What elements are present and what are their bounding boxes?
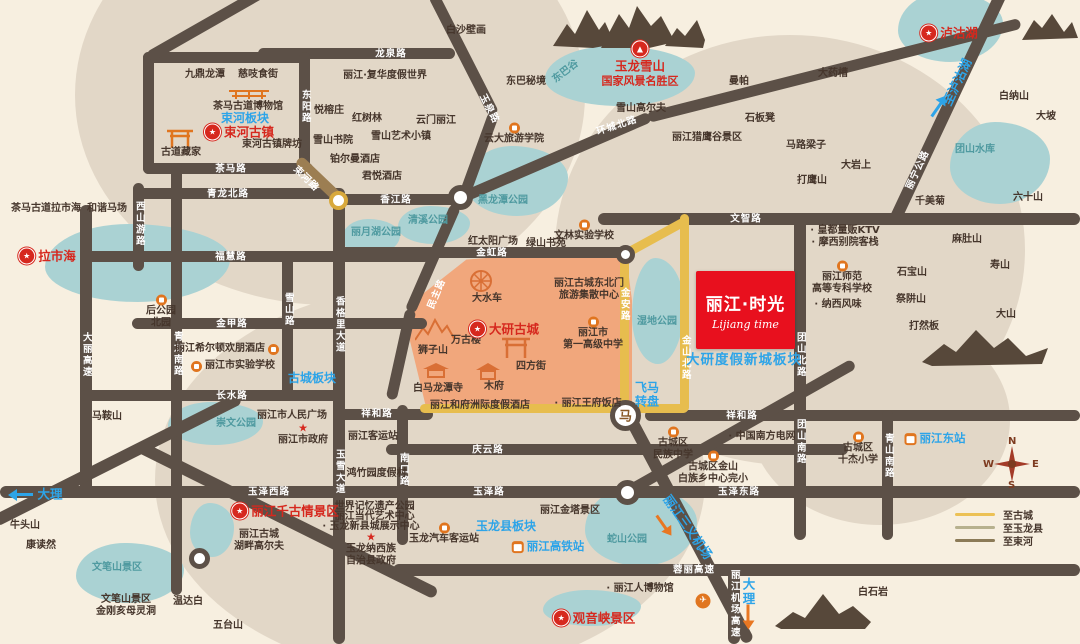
poi-hongzhuyuan-resort-label: · 鸿竹园度假村 bbox=[339, 468, 406, 480]
poi-dashan: 大山 bbox=[996, 309, 1016, 321]
scenic-lashihai-label: 拉市海 bbox=[38, 249, 76, 264]
lake-label-shidi-label: 湿地公园 bbox=[637, 316, 677, 328]
scenic-icon: ★ bbox=[553, 610, 570, 627]
org-yulong-bus-station: 玉龙汽车客运站 bbox=[409, 523, 479, 546]
baimalongtan-illustration bbox=[422, 362, 450, 378]
poi-mufu-label: 木府 bbox=[484, 381, 504, 393]
road-label-xiangjiang-label: 香江路 bbox=[380, 194, 412, 205]
poi-dayanshang-label: 大岩上 bbox=[841, 160, 871, 172]
org-no1-high-school: 丽江市第一高级中学 bbox=[563, 317, 623, 352]
poi-wenbishan-lingdong: 文笔山景区金刚亥母灵洞 bbox=[96, 594, 156, 618]
poi-pullman-hotel-label: 铂尔曼酒店 bbox=[330, 154, 380, 166]
poi-wangfu-hotel: · 丽江王府饭店 bbox=[554, 398, 621, 410]
roundabout-southwest bbox=[189, 548, 210, 569]
lake-label-tuanshan-reservoir: 团山水库 bbox=[955, 144, 995, 156]
compass-s: S bbox=[1008, 480, 1015, 491]
road-label-xiangjiang: 香江路 bbox=[380, 194, 412, 205]
poi-lieyinggu-label: 丽江猎鹰谷景区 bbox=[672, 132, 742, 144]
org-icon bbox=[439, 523, 450, 534]
scenic-luguhu: ★泸沽湖 bbox=[920, 25, 978, 42]
poi-maluliangzi-label: 马路梁子 bbox=[786, 140, 826, 152]
poi-dayanshang: 大岩上 bbox=[841, 160, 871, 172]
train-icon bbox=[512, 541, 524, 553]
poi-baishiyan: 白石岩 bbox=[858, 587, 888, 599]
road-label-jinhong: 金虹路 bbox=[476, 247, 508, 258]
road-label-xianghe-w: 祥和路 bbox=[361, 408, 393, 419]
poi-chamagudao-lashihai-label: 茶马古道拉市海 bbox=[11, 203, 81, 215]
project-marker[interactable]: 丽江·时光 Lijiang time bbox=[696, 271, 795, 349]
poi-shibaoshan: 石宝山 bbox=[897, 267, 927, 279]
poi-hongzhuyuan-resort: · 鸿竹园度假村 bbox=[339, 468, 406, 480]
poi-dayingshan-label: 打鹰山 bbox=[797, 175, 827, 187]
road-label-jichang-expwy: 丽江机场高速 bbox=[728, 570, 739, 639]
star-icon: ★ bbox=[366, 530, 376, 543]
poi-maanshan: 马鞍山 bbox=[92, 411, 122, 423]
poi-lijiangren-museum-label: · 丽江人博物馆 bbox=[606, 583, 673, 595]
road-label-xianggelila-label: 香格里大道 bbox=[333, 296, 344, 354]
poi-jiudinglongtan-label: 九鼎龙潭 bbox=[185, 69, 225, 81]
compass-rose: N E S W bbox=[988, 440, 1036, 488]
poi-lieyinggu: 丽江猎鹰谷景区 bbox=[672, 132, 742, 144]
poi-niutoushan: 牛头山 bbox=[10, 520, 40, 532]
org-icon bbox=[191, 361, 202, 372]
district-gucheng: 古城板块 bbox=[288, 371, 336, 385]
poi-intercontinental-hotel-label: 丽江和府洲际度假酒店 bbox=[430, 400, 530, 412]
poi-qianmeiju-label: 千美菊 bbox=[915, 196, 945, 208]
org-lijiang-city-gov-label: 丽江市政府 bbox=[278, 435, 328, 447]
lake-label-sheshan-label: 蛇山公园 bbox=[607, 534, 647, 546]
road-label-qingshannan: 青山南路 bbox=[882, 433, 893, 479]
lake-label-qingxi: 清溪公园 bbox=[408, 215, 448, 227]
lake-label-liyuehu: 丽月湖公园 bbox=[351, 227, 401, 239]
scenic-lashihai: ★拉市海 bbox=[18, 248, 76, 265]
compass-n: N bbox=[1008, 436, 1016, 447]
project-name: 丽江·时光 bbox=[706, 290, 785, 315]
road-label-changshui-label: 长水路 bbox=[216, 390, 248, 401]
poi-dongba-mijing-label: 东巴秘境 bbox=[506, 76, 546, 88]
road-label-rongli: 蓉丽高速 bbox=[673, 564, 715, 575]
lake-label-shidi: 湿地公园 bbox=[637, 316, 677, 328]
org-wenlin-school: 文林实验学校 bbox=[554, 220, 614, 243]
station-lijiang-east: 丽江东站 bbox=[905, 432, 966, 446]
road-label-yuze: 玉泽路 bbox=[473, 486, 505, 497]
lake-label-tuanshan-reservoir-label: 团山水库 bbox=[955, 144, 995, 156]
lijiang-location-map: 马 丽江·时光 Lijiang time 至古城 至玉龙县 至束河 N E S … bbox=[0, 0, 1080, 644]
poi-sifangjie-label: 四方街 bbox=[516, 361, 546, 373]
compass-w: W bbox=[983, 459, 994, 470]
road-label-longquan-label: 龙泉路 bbox=[375, 48, 407, 59]
poi-cizhi-food-street: 慈吱食街 bbox=[238, 69, 278, 81]
scenic-luguhu-label: 泸沽湖 bbox=[940, 26, 978, 41]
scenic-dayan-old-town-label: 大研古城 bbox=[489, 322, 539, 337]
poi-qianmeiju: 千美菊 bbox=[915, 196, 945, 208]
poi-dapo: 大坡 bbox=[1036, 111, 1056, 123]
road-label-longquan: 龙泉路 bbox=[375, 48, 407, 59]
poi-jijingshan-label: 祭阱山 bbox=[896, 294, 926, 306]
road-label-qingyun: 庆云路 bbox=[472, 444, 504, 455]
train-icon bbox=[905, 433, 917, 445]
poi-lakeside-golf-label-2: 湖畔高尔夫 bbox=[234, 541, 284, 553]
poi-huangdu-ktv: · 皇都量贩KTV bbox=[810, 225, 880, 237]
road-label-fuhui-label: 福慧路 bbox=[215, 251, 247, 262]
sifangjie-gate-illustration bbox=[500, 334, 532, 358]
scenic-icon: ★ bbox=[18, 248, 35, 265]
lake-label-chongwen-label: 崇文公园 bbox=[216, 418, 256, 430]
poi-huangdu-ktv-label: · 皇都量贩KTV bbox=[810, 225, 880, 237]
poi-gudaozangjia: 古道藏家 bbox=[161, 147, 201, 159]
org-icon bbox=[668, 427, 679, 438]
district-feima-roundabout-label: 飞马 bbox=[635, 381, 659, 395]
road-label-jichang-expwy-label: 丽江机场高速 bbox=[728, 570, 739, 639]
poi-dashuiche-label: 大水车 bbox=[472, 293, 502, 305]
scenic-qianguqing: ★丽江千古情景区 bbox=[231, 503, 339, 520]
district-dayan-newtown: 大研度假新城板块 bbox=[686, 352, 802, 368]
road-label-wenzhi: 文智路 bbox=[730, 213, 762, 224]
poi-naxi-fengwei: · 纳西风味 bbox=[814, 299, 861, 311]
scenic-yulong-snow-mountain-label: 玉龙雪山 bbox=[615, 58, 665, 73]
org-hougongyuan-beiyuan-label-2: 北园 bbox=[151, 318, 171, 330]
poi-dashuiche: 大水车 bbox=[472, 293, 502, 305]
poi-xueshan-academy-label: 雪山书院 bbox=[313, 135, 353, 147]
poi-shoushan-label: 寿山 bbox=[990, 260, 1010, 272]
poi-junyue-hotel-label: 君悦酒店 bbox=[362, 171, 402, 183]
scenic-yulong-snow-mountain-label-2: 国家风景名胜区 bbox=[602, 74, 679, 87]
mtn-icon: ▲ bbox=[632, 40, 649, 57]
scenic-dayan-old-town: ★大研古城 bbox=[469, 321, 539, 338]
direction-dali-west-label: 大理 bbox=[37, 487, 62, 502]
poi-bainashan: 白纳山 bbox=[999, 91, 1029, 103]
scenic-icon: ★ bbox=[469, 321, 486, 338]
arrow-dali-west bbox=[11, 493, 33, 496]
org-minzu-middle-school-label: 古城区 bbox=[658, 438, 688, 450]
poi-baisha-murals-label: 白沙壁画 bbox=[446, 25, 486, 37]
poi-jijingshan: 祭阱山 bbox=[896, 294, 926, 306]
poi-dayaocao: 大药槽 bbox=[818, 68, 848, 80]
poi-pullman-hotel: 铂尔曼酒店 bbox=[330, 154, 380, 166]
org-icon bbox=[708, 451, 719, 462]
poi-dayingshan: 打鹰山 bbox=[797, 175, 827, 187]
poi-liushishan-label: 六十山 bbox=[1013, 192, 1043, 204]
poi-baimalongtan-temple: 白马龙潭寺 bbox=[413, 383, 463, 395]
poi-wendabai: 温达白 bbox=[173, 596, 203, 608]
poi-naxi-fengwei-label: · 纳西风味 bbox=[814, 299, 861, 311]
road-label-dali-expwy: 大丽高速 bbox=[80, 332, 91, 378]
road-label-tuanshannan-label: 团山南路 bbox=[794, 419, 805, 465]
road-label-chama: 茶马路 bbox=[215, 163, 247, 174]
road-label-xianghe-w-label: 祥和路 bbox=[361, 408, 393, 419]
gold-road-jinshanbei bbox=[680, 214, 689, 412]
project-name-en: Lijiang time bbox=[712, 318, 779, 331]
org-icon bbox=[156, 295, 167, 306]
station-lijiang-hsr-label: 丽江高铁站 bbox=[527, 540, 585, 554]
poi-lijiang-bus-station-label: 丽江客运站 bbox=[348, 431, 398, 443]
legend-line-brown bbox=[955, 539, 995, 542]
lake-label-wenbishan: 文笔山景区 bbox=[92, 562, 142, 574]
icon-airport: ✈ bbox=[696, 594, 711, 609]
poi-hongtaiyang-square: 红太阳广场 bbox=[468, 236, 518, 248]
poi-lakeside-golf-label: 丽江古城 bbox=[239, 529, 279, 541]
road-label-qingyun-label: 庆云路 bbox=[472, 444, 504, 455]
poi-moxi-inn: · 摩西别院客栈 bbox=[811, 237, 878, 249]
star-icon: ★ bbox=[298, 421, 308, 434]
legend-label: 至束河 bbox=[1003, 533, 1033, 548]
road-label-xishanyou-label: 西山游路 bbox=[133, 201, 144, 247]
org-hilton-hotel: 丽江希尔顿欢朋酒店 bbox=[175, 343, 279, 355]
poi-hexie-horse-ranch-label: 和谐马场 bbox=[87, 203, 127, 215]
museum-illustration bbox=[228, 85, 270, 99]
poi-dapo-label: 大坡 bbox=[1036, 111, 1056, 123]
org-icon bbox=[579, 220, 590, 231]
road-qinglongnan bbox=[171, 163, 182, 595]
org-jinshan-primary-label-2: 白族乡中心完小 bbox=[678, 474, 748, 486]
map-legend: 至古城 至玉龙县 至束河 bbox=[955, 508, 1043, 547]
district-feima-roundabout-label-2: 转盘 bbox=[635, 395, 659, 409]
road-xianghe-east bbox=[645, 410, 1080, 421]
road-label-jinjia-label: 金甲路 bbox=[216, 318, 248, 329]
poi-lakeside-golf: 丽江古城湖畔高尔夫 bbox=[234, 529, 284, 553]
poi-hongshulin: 红树林 bbox=[352, 113, 382, 125]
poi-maluliangzi: 马路梁子 bbox=[786, 140, 826, 152]
org-icon bbox=[837, 261, 848, 272]
org-normal-college-label: 丽江师范 bbox=[822, 272, 862, 284]
org-wenlin-school-label: 文林实验学校 bbox=[554, 231, 614, 243]
poi-manpa-label: 曼帕 bbox=[729, 76, 749, 88]
road-label-jinhong-label: 金虹路 bbox=[476, 247, 508, 258]
road-label-qinglongbei-label: 青龙北路 bbox=[207, 188, 249, 199]
poi-jinta-scenic: 丽江金塔景区 bbox=[540, 505, 600, 517]
scenic-icon: ★ bbox=[920, 25, 937, 42]
poi-hongshulin-label: 红树林 bbox=[352, 113, 382, 125]
road-label-xueshan-rd: 雪山路 bbox=[282, 293, 293, 328]
poi-xueshan-art-town: 雪山艺术小镇 bbox=[371, 131, 431, 143]
poi-yunmen-lijiang-label: 云门丽江 bbox=[416, 115, 456, 127]
legend-line-gold bbox=[955, 513, 995, 516]
org-lijiang-city-gov: ★丽江市政府 bbox=[278, 421, 328, 446]
road-label-xianghe-e: 祥和路 bbox=[726, 410, 758, 421]
lake-label-liyuehu-label: 丽月湖公园 bbox=[351, 227, 401, 239]
poi-china-southern-grid: · 中国南方电网 bbox=[728, 431, 795, 443]
poi-baimalongtan-temple-label: 白马龙潭寺 bbox=[413, 383, 463, 395]
lake-label-heilongtan: 黑龙潭公园 bbox=[478, 195, 528, 207]
poi-baishiyan-label: 白石岩 bbox=[858, 587, 888, 599]
direction-dali-south-label: 大理 bbox=[741, 578, 756, 607]
road-changshui bbox=[80, 390, 345, 401]
poi-bainashan-label: 白纳山 bbox=[999, 91, 1029, 103]
roundabout-heilongtan bbox=[448, 185, 473, 210]
poi-xueshan-academy: 雪山书院 bbox=[313, 135, 353, 147]
lake-label-heilongtan-label: 黑龙潭公园 bbox=[478, 195, 528, 207]
poi-old-town-ne-gate-label-2: 旅游集散中心 bbox=[559, 290, 619, 302]
poi-dayaocao-label: 大药槽 bbox=[818, 68, 848, 80]
poi-intercontinental-hotel: 丽江和府洲际度假酒店 bbox=[430, 400, 530, 412]
org-icon bbox=[509, 123, 520, 134]
station-lijiang-hsr: 丽江高铁站 bbox=[512, 540, 585, 554]
poi-sifangjie: 四方街 bbox=[516, 361, 546, 373]
poi-wenbishan-lingdong-label-2: 金刚亥母灵洞 bbox=[96, 606, 156, 618]
scenic-guanyinxia-label: 观音峡景区 bbox=[573, 611, 636, 626]
district-dayan-newtown-label: 大研度假新城板块 bbox=[686, 352, 802, 368]
poi-xueshan-art-town-label: 雪山艺术小镇 bbox=[371, 131, 431, 143]
org-shijie-primary: 古城区十杰小学 bbox=[838, 432, 878, 467]
road-label-wenzhi-label: 文智路 bbox=[730, 213, 762, 224]
scenic-qianguqing-label: 丽江千古情景区 bbox=[251, 504, 339, 519]
poi-old-town-ne-gate: 丽江古城东北门旅游集散中心 bbox=[554, 278, 624, 302]
roundabout-yuze bbox=[615, 480, 640, 505]
road-label-yuze-e-label: 玉泽东路 bbox=[718, 486, 760, 497]
org-icon bbox=[853, 432, 864, 443]
lake-label-qingxi-label: 清溪公园 bbox=[408, 215, 448, 227]
org-yunda-tourism-college: 云大旅游学院 bbox=[484, 123, 544, 146]
road-label-dali-expwy-label: 大丽高速 bbox=[80, 332, 91, 378]
poi-wangfu-hotel-label: · 丽江王府饭店 bbox=[554, 398, 621, 410]
poi-daranban: 打然板 bbox=[909, 321, 939, 333]
poi-fuhua-resort-world-label: 丽江·复华度假世界 bbox=[343, 70, 427, 82]
legend-row-shuhe: 至束河 bbox=[955, 534, 1043, 547]
shuhe-gate-illustration bbox=[166, 126, 194, 148]
road-label-rongli-label: 蓉丽高速 bbox=[673, 564, 715, 575]
roundabout-jinan bbox=[616, 245, 635, 264]
mountain-silhouette-ne bbox=[1022, 12, 1078, 42]
road-label-yuze-e: 玉泽东路 bbox=[718, 486, 760, 497]
poi-old-town-ne-gate-label: 丽江古城东北门 bbox=[554, 278, 624, 290]
poi-wenbishan-lingdong-label: 文笔山景区 bbox=[101, 594, 151, 606]
org-icon bbox=[588, 317, 599, 328]
org-yulong-county-gov-label: 玉龙纳西族 bbox=[346, 544, 396, 556]
road-label-fuhui: 福慧路 bbox=[215, 251, 247, 262]
poi-lijiangren-museum: · 丽江人博物馆 bbox=[606, 583, 673, 595]
poi-shoushan: 寿山 bbox=[990, 260, 1010, 272]
org-yunda-tourism-college-label: 云大旅游学院 bbox=[484, 134, 544, 146]
poi-renmin-square-label: 丽江市人民广场 bbox=[257, 410, 327, 422]
poi-wendabai-label: 温达白 bbox=[173, 596, 203, 608]
lake-label-wenbishan-label: 文笔山景区 bbox=[92, 562, 142, 574]
poi-wutaishan: 五台山 bbox=[213, 620, 243, 632]
poi-cizhi-food-street-label: 慈吱食街 bbox=[238, 69, 278, 81]
scenic-yulong-snow-mountain: ▲玉龙雪山国家风景名胜区 bbox=[602, 40, 679, 87]
org-lijiang-experimental-school-label: 丽江市实验学校 bbox=[205, 360, 275, 372]
org-icon bbox=[268, 344, 279, 355]
poi-yunmen-lijiang: 云门丽江 bbox=[416, 115, 456, 127]
poi-madushan: 麻肚山 bbox=[952, 234, 982, 246]
poi-wutaishan-label: 五台山 bbox=[213, 620, 243, 632]
poi-maanshan-label: 马鞍山 bbox=[92, 411, 122, 423]
poi-xueshan-golf-label: 雪山高尔夫 bbox=[616, 103, 666, 115]
org-yulong-bus-station-label: 玉龙汽车客运站 bbox=[409, 534, 479, 546]
road-label-tuanshannan: 团山南路 bbox=[794, 419, 805, 465]
road-shuhe-ring-top bbox=[143, 52, 310, 63]
road-label-yuze-label: 玉泽路 bbox=[473, 486, 505, 497]
mountain-silhouette-se bbox=[775, 592, 871, 630]
org-shijie-primary-label: 古城区 bbox=[843, 443, 873, 455]
poi-china-southern-grid-label: · 中国南方电网 bbox=[728, 431, 795, 443]
mountain-silhouette-east bbox=[922, 326, 1048, 366]
poi-shibandeng: 石板凳 bbox=[745, 113, 775, 125]
waterwheel-illustration bbox=[468, 268, 494, 294]
org-normal-college: 丽江师范高等专科学校 bbox=[812, 261, 872, 296]
poi-jinta-scenic-label: 丽江金塔景区 bbox=[540, 505, 600, 517]
road-label-xishanyou: 西山游路 bbox=[133, 201, 144, 247]
poi-mufu: 木府 bbox=[484, 381, 504, 393]
poi-gudaozangjia-label: 古道藏家 bbox=[161, 147, 201, 159]
mufu-illustration bbox=[474, 362, 502, 380]
legend-line-grey bbox=[955, 526, 995, 529]
org-jinshan-primary: 古城区金山白族乡中心完小 bbox=[678, 451, 748, 486]
road-label-xianghe-e-label: 祥和路 bbox=[726, 410, 758, 421]
poi-liushishan: 六十山 bbox=[1013, 192, 1043, 204]
lake-label-sheshan: 蛇山公园 bbox=[607, 534, 647, 546]
org-no1-high-school-label: 丽江市 bbox=[578, 328, 608, 340]
arrow-dali-south bbox=[747, 605, 750, 627]
poi-lijiang-bus-station: 丽江客运站 bbox=[348, 431, 398, 443]
poi-moxi-inn-label: · 摩西别院客栈 bbox=[811, 237, 878, 249]
poi-junyue-hotel: 君悦酒店 bbox=[362, 171, 402, 183]
poi-shuhe-archway-label: 束河古镇牌坊 bbox=[242, 139, 302, 151]
direction-dali-west: 大理 bbox=[37, 487, 62, 502]
org-hilton-hotel-label: 丽江希尔顿欢朋酒店 bbox=[175, 343, 265, 355]
poi-yuerongzhuang: 悦榕庄 bbox=[314, 105, 344, 117]
poi-daranban-label: 打然板 bbox=[909, 321, 939, 333]
poi-dongba-mijing: 东巴秘境 bbox=[506, 76, 546, 88]
district-yulongxian-label: 玉龙县板块 bbox=[476, 519, 536, 533]
poi-madushan-label: 麻肚山 bbox=[952, 234, 982, 246]
road-label-dongyang: 东阳路 bbox=[299, 90, 310, 125]
poi-niutoushan-label: 牛头山 bbox=[10, 520, 40, 532]
poi-shibaoshan-label: 石宝山 bbox=[897, 267, 927, 279]
road-label-qinglongbei: 青龙北路 bbox=[207, 188, 249, 199]
scenic-shuhe-old-town-label: 束河古镇 bbox=[224, 125, 274, 140]
station-lijiang-east-label: 丽江东站 bbox=[920, 432, 966, 446]
road-label-xianggelila: 香格里大道 bbox=[333, 296, 344, 354]
road-label-dongyang-label: 东阳路 bbox=[299, 90, 310, 125]
road-label-yuze-w: 玉泽西路 bbox=[248, 486, 290, 497]
scenic-guanyinxia: ★观音峡景区 bbox=[553, 610, 636, 627]
district-yulongxian: 玉龙县板块 bbox=[476, 519, 536, 533]
compass-e: E bbox=[1032, 459, 1039, 470]
org-hougongyuan-beiyuan-label: 后公园 bbox=[146, 306, 176, 318]
poi-manpa: 曼帕 bbox=[729, 76, 749, 88]
org-normal-college-label-2: 高等专科学校 bbox=[812, 284, 872, 296]
org-shijie-primary-label-2: 十杰小学 bbox=[838, 455, 878, 467]
poi-dashan-label: 大山 bbox=[996, 309, 1016, 321]
plane-icon: ✈ bbox=[696, 594, 711, 609]
road-label-qingshannan-label: 青山南路 bbox=[882, 433, 893, 479]
org-no1-high-school-label-2: 第一高级中学 bbox=[563, 340, 623, 352]
district-feima-roundabout: 飞马转盘 bbox=[635, 381, 659, 410]
road-xianggelila-yuxue bbox=[333, 196, 345, 644]
org-hougongyuan-beiyuan: 后公园北园 bbox=[146, 295, 176, 330]
poi-hexie-horse-ranch: 和谐马场 bbox=[87, 203, 127, 215]
direction-dali-south: 大理 bbox=[741, 578, 756, 607]
poi-baisha-murals: 白沙壁画 bbox=[446, 25, 486, 37]
poi-chamagudao-lashihai: 茶马古道拉市海 bbox=[11, 203, 81, 215]
poi-renmin-square: 丽江市人民广场 bbox=[257, 410, 327, 422]
org-lijiang-experimental-school: 丽江市实验学校 bbox=[191, 360, 275, 372]
org-yulong-county-gov: ★玉龙纳西族自治县政府 bbox=[346, 530, 396, 567]
poi-shibandeng-label: 石板凳 bbox=[745, 113, 775, 125]
poi-yuerongzhuang-label: 悦榕庄 bbox=[314, 105, 344, 117]
road-label-yuze-w-label: 玉泽西路 bbox=[248, 486, 290, 497]
poi-fuhua-resort-world: 丽江·复华度假世界 bbox=[343, 70, 427, 82]
poi-jiudinglongtan: 九鼎龙潭 bbox=[185, 69, 225, 81]
poi-kanduran: 康读然 bbox=[26, 540, 56, 552]
road-label-changshui: 长水路 bbox=[216, 390, 248, 401]
scenic-icon: ★ bbox=[204, 124, 221, 141]
road-label-xueshan-rd-label: 雪山路 bbox=[282, 293, 293, 328]
poi-shizishan: 狮子山 bbox=[418, 345, 448, 357]
poi-hongtaiyang-square-label: 红太阳广场 bbox=[468, 236, 518, 248]
roundabout-shuhe bbox=[329, 191, 348, 210]
lake-label-chongwen: 崇文公园 bbox=[216, 418, 256, 430]
